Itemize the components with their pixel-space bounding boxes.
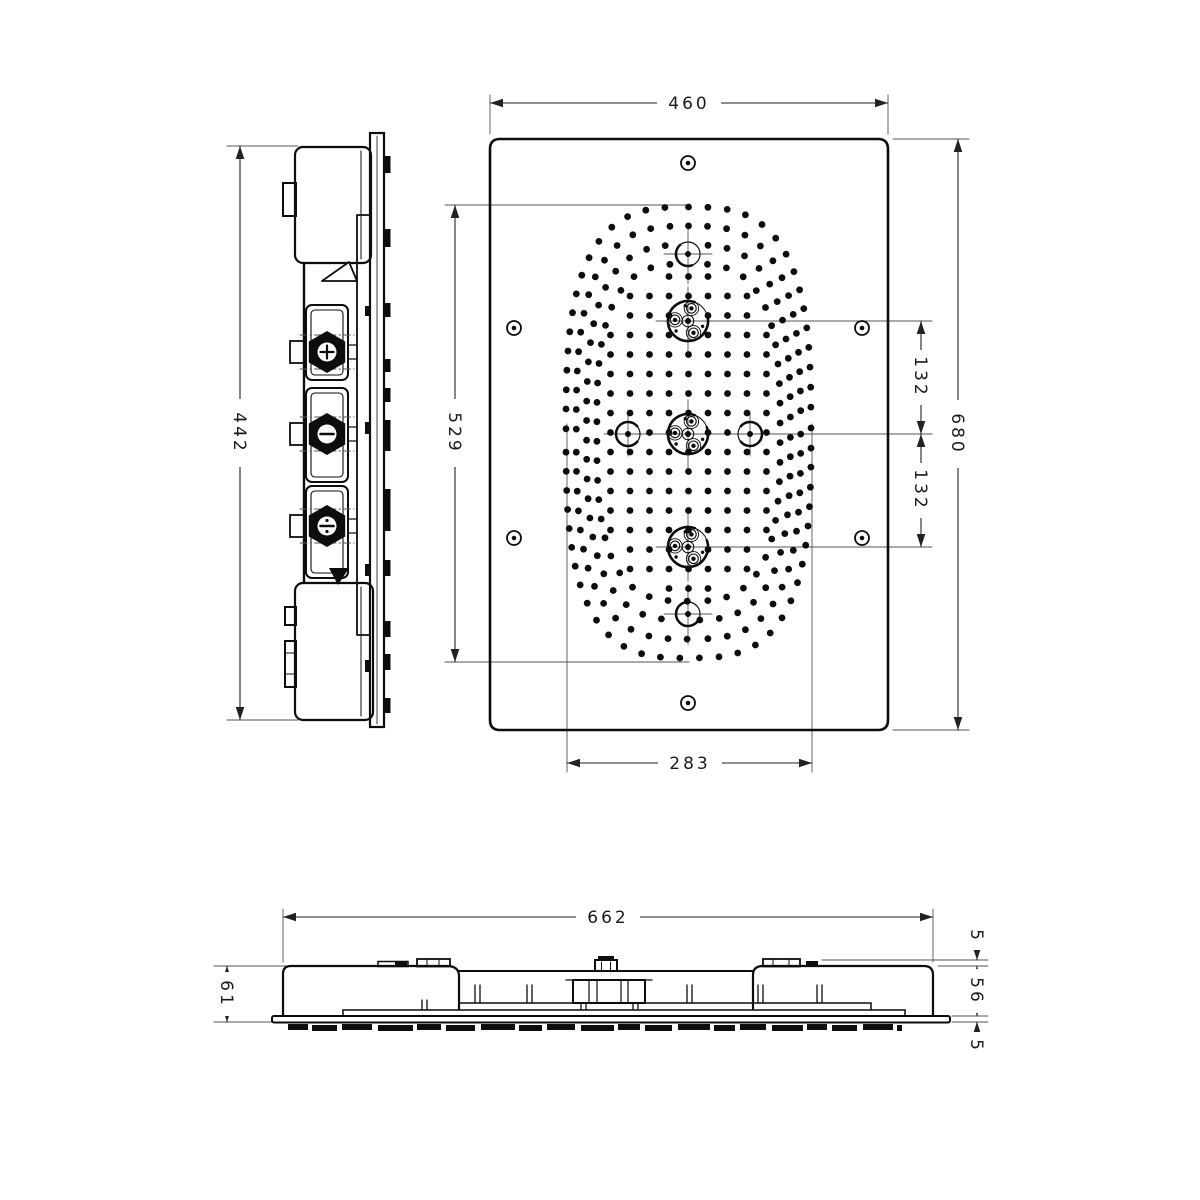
mounting-screw xyxy=(507,321,521,335)
dim-spray-field-height: 529 xyxy=(444,412,464,453)
nozzle-dot xyxy=(612,268,619,275)
nozzle-dot xyxy=(586,254,593,261)
nozzle-dot xyxy=(563,449,570,456)
nozzle-dot xyxy=(573,291,580,298)
nozzle-dot xyxy=(793,330,800,337)
panel-clip-mark xyxy=(384,420,391,451)
nozzle-dot xyxy=(705,351,712,358)
nozzle-dot xyxy=(577,329,584,336)
screw-center xyxy=(686,161,691,166)
nozzle-dot xyxy=(724,312,731,319)
nozzle-dot xyxy=(777,439,784,446)
panel-clip-mark xyxy=(365,564,370,576)
dimension-arrow xyxy=(917,321,926,334)
nozzle-dot xyxy=(805,523,812,530)
nozzle-dot xyxy=(646,507,653,514)
nozzle-dot xyxy=(598,341,605,348)
nozzle-dot xyxy=(742,232,749,239)
nozzle-dot xyxy=(563,487,570,494)
nozzle-dot xyxy=(685,468,692,475)
dim-bottom-width: 662 xyxy=(587,908,628,928)
dimension-arrow xyxy=(236,146,245,159)
nozzle-dot xyxy=(646,390,653,397)
nozzle-dot xyxy=(783,251,790,258)
nozzle-dot xyxy=(758,615,765,622)
nozzle-dot xyxy=(627,312,634,319)
nozzle-dot xyxy=(799,561,806,568)
nozzle-dot xyxy=(704,597,711,604)
nozzle-dot xyxy=(646,293,653,300)
nozzle-dot xyxy=(740,585,747,592)
dimension-arrow xyxy=(875,99,888,108)
nozzle-dot xyxy=(666,449,673,456)
nozzle-dot xyxy=(631,273,638,280)
nozzle-strip-segment xyxy=(897,1025,902,1031)
panel-clip-mark xyxy=(384,388,391,402)
nozzle-dot xyxy=(724,293,731,300)
nozzle-dot xyxy=(627,566,634,573)
nozzle-dot xyxy=(666,410,673,417)
nozzle-dot xyxy=(705,449,712,456)
nozzle-dot xyxy=(787,393,794,400)
nozzle-strip-segment xyxy=(312,1025,337,1031)
nozzle-dot xyxy=(784,511,791,518)
nozzle-dot xyxy=(763,390,770,397)
nozzle-strip-segment xyxy=(714,1025,735,1031)
nozzle-dot xyxy=(790,547,797,554)
nozzle-dot xyxy=(772,517,779,524)
screw-center xyxy=(860,326,865,331)
nozzle-dot xyxy=(724,371,731,378)
nozzle-dot xyxy=(685,351,692,358)
nozzle-dot xyxy=(807,364,814,371)
mounting-screw xyxy=(855,321,869,335)
nozzle-dot xyxy=(723,265,730,272)
mounting-screw xyxy=(855,531,869,545)
nozzle-dot xyxy=(744,351,751,358)
nozzle-dot xyxy=(763,351,770,358)
nozzle-dot xyxy=(716,653,723,660)
nozzle-dot xyxy=(705,635,712,642)
nozzle-dot xyxy=(723,225,730,232)
nozzle-dot xyxy=(777,420,784,427)
nozzle-dot xyxy=(618,287,625,294)
nozzle-dot xyxy=(785,355,792,362)
nozzle-dot xyxy=(627,488,634,495)
nozzle-dot xyxy=(577,582,584,589)
dim-upper-jet-offset: 132 xyxy=(910,356,930,397)
jet-micro-dot xyxy=(684,304,687,307)
nozzle-dot xyxy=(627,449,634,456)
nozzle-dot xyxy=(565,348,572,355)
module-center xyxy=(685,431,691,437)
retainer-clip-mark xyxy=(806,961,818,966)
nozzle-dot xyxy=(808,445,815,452)
nozzle-dot xyxy=(685,223,692,230)
nozzle-dot xyxy=(646,633,653,640)
nozzle-dot xyxy=(607,390,614,397)
nozzle-dot xyxy=(793,528,800,535)
nozzle-dot xyxy=(763,488,770,495)
nozzle-dot xyxy=(779,274,786,281)
nozzle-dot xyxy=(583,437,590,444)
nozzle-dot xyxy=(608,304,615,311)
nozzle-dot xyxy=(756,265,763,272)
union-symbol-dot xyxy=(325,519,328,522)
mounting-screw xyxy=(681,696,695,710)
nozzle-dot xyxy=(724,507,731,514)
dimension-arrow xyxy=(283,913,296,922)
nozzle-dot xyxy=(724,429,731,436)
nozzle-dot xyxy=(646,429,653,436)
connection-block xyxy=(573,980,645,1003)
nozzle-dot xyxy=(591,583,598,590)
nozzle-dot xyxy=(786,492,793,499)
nozzle-strip-segment xyxy=(740,1024,766,1030)
nozzle-dot xyxy=(757,243,764,250)
jet-micro-dot xyxy=(684,417,687,420)
nozzle-dot xyxy=(607,507,614,514)
nozzle-dot xyxy=(607,429,614,436)
nozzle-dot xyxy=(772,341,779,348)
nozzle-dot xyxy=(724,633,731,640)
nozzle-dot xyxy=(797,431,804,438)
union-nut-tab xyxy=(290,341,304,363)
inlet-nub xyxy=(595,960,617,971)
mounting-screw xyxy=(681,156,695,170)
nozzle-dot xyxy=(607,351,614,358)
panel-clip-mark xyxy=(384,698,391,713)
dim-front-height: 680 xyxy=(947,413,967,454)
nozzle-dot xyxy=(626,255,633,262)
side-view: 442 xyxy=(227,133,391,727)
nozzle-strip-segment xyxy=(547,1024,575,1030)
nozzle-dot xyxy=(705,242,712,249)
nozzle-dot xyxy=(581,310,588,317)
nozzle-strip-segment xyxy=(832,1025,857,1031)
nozzle-dot xyxy=(724,351,731,358)
nozzle-dot xyxy=(744,566,751,573)
nozzle-dot xyxy=(763,410,770,417)
nozzle-dot xyxy=(646,312,653,319)
nozzle-dot xyxy=(563,425,570,432)
nozzle-dot xyxy=(662,242,669,249)
dim-total-depth: 61 xyxy=(216,980,236,1008)
nozzle-dot xyxy=(742,211,749,218)
panel-clip-mark xyxy=(384,654,391,670)
nozzle-dot xyxy=(724,206,731,213)
nozzle-dot xyxy=(744,449,751,456)
nozzle-dot xyxy=(802,542,809,549)
nozzle-dot xyxy=(642,207,649,214)
nozzle-dot xyxy=(573,426,580,433)
nozzle-dot xyxy=(744,410,751,417)
nozzle-dot xyxy=(569,309,576,316)
nozzle-dot xyxy=(696,655,703,662)
nozzle-dot xyxy=(566,525,573,532)
nozzle-dot xyxy=(783,336,790,343)
nozzle-strip-segment xyxy=(342,1024,372,1030)
nozzle-dot xyxy=(705,566,712,573)
nozzle-dot xyxy=(608,553,615,560)
panel-clip-mark xyxy=(384,489,391,531)
nozzle-dot xyxy=(583,417,590,424)
nozzle-dot xyxy=(594,552,601,559)
nozzle-dot xyxy=(607,449,614,456)
mode-center xyxy=(685,251,691,257)
nozzle-dot xyxy=(763,429,770,436)
nozzle-dot xyxy=(797,388,804,395)
nozzle-dot xyxy=(596,360,603,367)
nozzle-dot xyxy=(724,245,731,252)
bottom-view-geometry xyxy=(214,909,988,1038)
nozzle-dot xyxy=(667,223,674,230)
dim-front-width: 460 xyxy=(668,94,709,114)
nozzle-dot xyxy=(779,317,786,324)
nozzle-dot xyxy=(768,536,775,543)
nozzle-dot xyxy=(705,488,712,495)
nozzle-dot xyxy=(580,546,587,553)
nozzle-dot xyxy=(607,488,614,495)
nozzle-dot xyxy=(704,261,711,268)
nozzle-dot xyxy=(796,368,803,375)
nozzle-dot xyxy=(666,390,673,397)
screw-center xyxy=(512,536,517,541)
nozzle-dot xyxy=(572,563,579,570)
nozzle-dot xyxy=(763,468,770,475)
nozzle-dot xyxy=(621,643,628,650)
panel-clip-mark xyxy=(384,359,391,372)
nozzle-dot xyxy=(587,339,594,346)
nozzle-dot xyxy=(803,325,810,332)
nozzle-dot xyxy=(705,468,712,475)
nozzle-dot xyxy=(779,584,786,591)
nozzle-dot xyxy=(763,507,770,514)
nozzle-dot xyxy=(608,224,615,231)
nozzle-dot xyxy=(705,390,712,397)
nozzle-dot xyxy=(685,273,692,280)
dimension-arrow xyxy=(917,421,926,434)
nozzle-dot xyxy=(808,464,815,471)
panel-clip-mark xyxy=(384,156,391,173)
nozzle-dot xyxy=(574,368,581,375)
upper-clamp-wedge xyxy=(322,262,357,281)
nozzle-dot xyxy=(768,322,775,329)
nozzle-dot xyxy=(786,374,793,381)
screw-center xyxy=(512,326,517,331)
nozzle-dot xyxy=(787,453,794,460)
nozzle-dot xyxy=(724,449,731,456)
nozzle-dot xyxy=(744,546,751,553)
nozzle-dot xyxy=(638,650,645,657)
nozzle-dot xyxy=(772,235,779,242)
nozzle-dot xyxy=(646,593,653,600)
dim-body-depth: 56 xyxy=(966,977,986,1005)
nozzle-dot xyxy=(724,390,731,397)
nozzle-dot xyxy=(776,380,783,387)
nozzle-dot xyxy=(808,404,815,411)
nozzle-dot xyxy=(627,351,634,358)
nozzle-dot xyxy=(704,223,711,230)
nozzle-dot xyxy=(724,488,731,495)
nozzle-dot xyxy=(627,371,634,378)
nozzle-dot xyxy=(627,468,634,475)
nozzle-dot xyxy=(563,386,570,393)
nozzle-dot xyxy=(742,626,749,633)
front-view-geometry xyxy=(445,95,969,772)
nozzle-dot xyxy=(566,328,573,335)
mode-center xyxy=(625,431,631,437)
nozzle-dot xyxy=(724,527,731,534)
nozzle-dot xyxy=(602,534,609,541)
nozzle-dot xyxy=(573,387,580,394)
nozzle-dot xyxy=(775,361,782,368)
nozzle-dot xyxy=(627,507,634,514)
upper-housing-box xyxy=(295,147,371,263)
nozzle-dot xyxy=(564,367,571,374)
nozzle-dot xyxy=(607,332,614,339)
nozzle-strip-segment xyxy=(288,1024,308,1030)
nozzle-dot xyxy=(753,571,760,578)
nozzle-dot xyxy=(666,273,673,280)
jet-dot xyxy=(691,557,695,561)
dimension-arrow xyxy=(567,759,580,768)
nozzle-dot xyxy=(741,253,748,260)
nozzle-dot xyxy=(800,305,807,312)
nozzle-dot xyxy=(666,371,673,378)
nozzle-dot xyxy=(583,398,590,405)
nozzle-dot xyxy=(616,570,623,577)
nozzle-dot xyxy=(643,246,650,253)
nozzle-dot xyxy=(744,527,751,534)
nozzle-strip-segment xyxy=(446,1025,475,1031)
nozzle-dot xyxy=(628,626,635,633)
nozzle-dot xyxy=(724,410,731,417)
union-symbol-dot xyxy=(325,530,328,533)
panel-clip-mark xyxy=(365,306,370,316)
nozzle-dot xyxy=(796,286,803,293)
flange-plate xyxy=(272,1016,950,1023)
nozzle-dot xyxy=(744,332,751,339)
nozzle-dot xyxy=(685,488,692,495)
nozzle-dot xyxy=(744,390,751,397)
nozzle-dot xyxy=(752,642,759,649)
nozzle-dot xyxy=(585,565,592,572)
nozzle-dot xyxy=(607,527,614,534)
nozzle-dot xyxy=(762,554,769,561)
jet-dot xyxy=(689,419,693,423)
nozzle-dot xyxy=(723,594,730,601)
nozzle-dot xyxy=(594,399,601,406)
nozzle-dot xyxy=(666,488,673,495)
nozzle-dot xyxy=(595,496,602,503)
nozzle-dot xyxy=(807,384,814,391)
nozzle-dot xyxy=(805,344,812,351)
nozzle-strip-segment xyxy=(519,1025,542,1031)
nozzle-strip-segment xyxy=(378,1025,413,1031)
nozzle-dot xyxy=(564,506,571,513)
nozzle-dot xyxy=(601,257,608,264)
nozzle-dot xyxy=(676,655,683,662)
dimension-arrow xyxy=(799,759,812,768)
nozzle-dot xyxy=(666,585,673,592)
jet-micro-dot xyxy=(684,530,687,533)
nozzle-dot xyxy=(577,527,584,534)
nozzle-dot xyxy=(610,587,617,594)
nozzle-dot xyxy=(607,371,614,378)
dim-side-housing-height: 442 xyxy=(229,412,249,453)
nozzle-dot xyxy=(777,459,784,466)
jet-dot xyxy=(689,532,693,536)
jet-micro-dot xyxy=(701,438,704,441)
nozzle-dot xyxy=(771,567,778,574)
jet-dot xyxy=(673,318,677,322)
nozzle-dot xyxy=(684,598,691,605)
nozzle-dot xyxy=(623,601,630,608)
nozzle-dot xyxy=(705,410,712,417)
nozzle-dot xyxy=(600,570,607,577)
nozzle-dot xyxy=(600,600,607,607)
nozzle-dot xyxy=(724,566,731,573)
nozzle-dot xyxy=(624,213,631,220)
side-view-geometry xyxy=(227,133,391,727)
panel-clip-mark xyxy=(365,660,370,672)
nozzle-dot xyxy=(775,498,782,505)
dim-lower-jet-offset: 132 xyxy=(910,469,930,510)
nozzle-strip-segment xyxy=(481,1024,515,1030)
bottom-view: 662 61 5 56 5 xyxy=(214,908,988,1060)
jet-micro-dot xyxy=(674,442,677,445)
nozzle-dot xyxy=(594,438,601,445)
nozzle-dot xyxy=(705,507,712,514)
nozzle-dot xyxy=(639,611,646,618)
nozzle-dot xyxy=(627,410,634,417)
nozzle-dot xyxy=(724,332,731,339)
nozzle-strip-segment xyxy=(863,1024,893,1030)
nozzle-dot xyxy=(759,221,766,228)
jet-micro-dot xyxy=(674,555,677,558)
nozzle-strip-segment xyxy=(618,1024,640,1030)
nozzle-dot xyxy=(658,616,665,623)
nozzle-dot xyxy=(662,204,669,211)
nozzle-dot xyxy=(612,615,619,622)
nozzle-dot xyxy=(605,632,612,639)
dim-panel-thickness: 5 xyxy=(966,1039,986,1053)
nozzle-dot xyxy=(590,320,597,327)
nozzle-dot xyxy=(787,473,794,480)
nozzle-dot xyxy=(583,456,590,463)
nozzle-dot xyxy=(646,371,653,378)
nozzle-dot xyxy=(744,312,751,319)
nozzle-dot xyxy=(647,264,654,271)
nozzle-dot xyxy=(594,457,601,464)
nozzle-dot xyxy=(594,380,601,387)
nozzle-dot xyxy=(646,527,653,534)
water-connection-bracket xyxy=(290,305,357,380)
screw-center xyxy=(860,536,865,541)
nozzle-dot xyxy=(685,371,692,378)
nozzle-dot xyxy=(587,515,594,522)
nozzle-dot xyxy=(795,349,802,356)
nozzle-dot xyxy=(744,293,751,300)
dimension-arrow xyxy=(954,139,963,152)
nozzle-strip-segment xyxy=(581,1025,614,1031)
nozzle-dot xyxy=(592,274,599,281)
nozzle-dot xyxy=(627,390,634,397)
nozzle-dot xyxy=(629,231,636,238)
right-housing-profile xyxy=(753,966,933,1016)
jet-dot xyxy=(673,431,677,435)
